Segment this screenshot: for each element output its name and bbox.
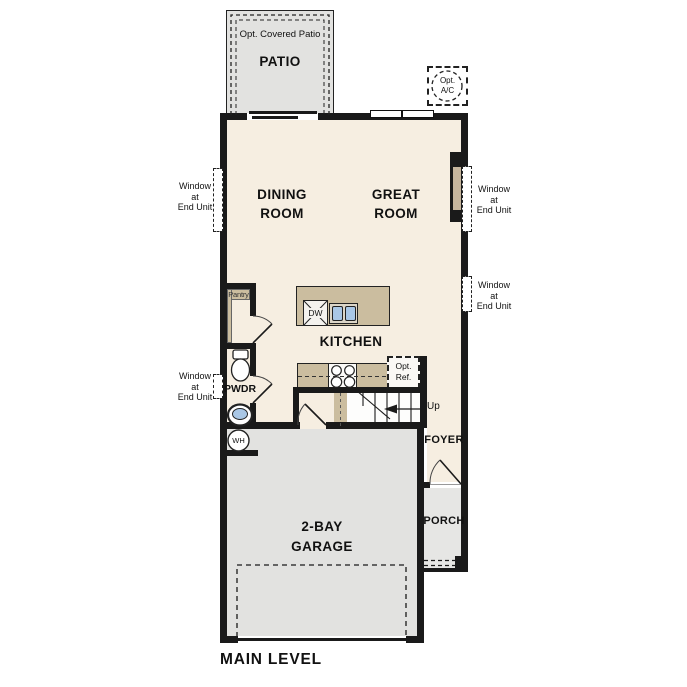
kitchen-label: KITCHEN (299, 333, 403, 352)
plan-title: MAIN LEVEL (220, 651, 360, 669)
powder-sink-basin (233, 409, 248, 420)
foyer-label: FOYER (422, 434, 466, 446)
window-note-left-lower: Window at End Unit (172, 371, 218, 403)
dishwasher-label: DW (303, 308, 328, 318)
garage-entry-door-swing (298, 404, 305, 425)
floor-plan: Opt. Covered Patio PATIO Opt. A/C DINING… (0, 0, 687, 687)
front-door-swing (430, 460, 440, 484)
dining-room-label: DINING ROOM (240, 186, 324, 224)
porch-label: PORCH (422, 515, 466, 527)
garage-label: 2-BAY GARAGE (260, 517, 384, 556)
great-room-label: GREAT ROOM (354, 186, 438, 224)
toilet-bowl-icon (232, 359, 250, 381)
patio-label: PATIO (231, 53, 329, 72)
water-heater-label: WH (228, 436, 249, 445)
stairs-up-label: Up (427, 401, 451, 412)
stair-break-line (357, 391, 390, 419)
opt-covered-patio-label: Opt. Covered Patio (231, 29, 329, 40)
window-note-right-lower: Window at End Unit (471, 280, 517, 312)
pantry-label: Pantry (227, 290, 250, 299)
opt-ac-label: Opt. A/C (430, 76, 465, 95)
window-note-left-upper: Window at End Unit (172, 181, 218, 213)
burner-icon (331, 377, 341, 387)
garage-entry-door-leaf (305, 404, 326, 425)
garage-door-outline (237, 565, 406, 637)
pantry-door-swing (253, 316, 272, 324)
front-door-leaf (440, 460, 461, 484)
toilet-tank-icon (233, 350, 248, 359)
burner-icon (345, 366, 355, 376)
opt-ref-label: Opt. Ref. (387, 361, 420, 382)
dishwasher-label-bg: DW (307, 308, 323, 318)
window-note-right-upper: Window at End Unit (471, 184, 517, 216)
powder-room-label: PWDR (222, 383, 258, 395)
stair-direction-arrow-head (384, 405, 397, 414)
pantry-door-leaf (253, 324, 272, 343)
burner-icon (344, 377, 354, 387)
burner-icon (332, 366, 342, 376)
